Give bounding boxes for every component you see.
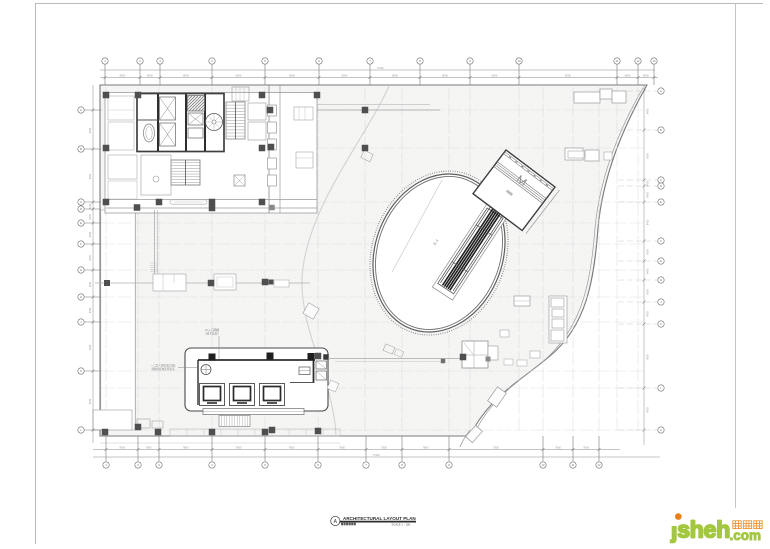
svg-text:8400: 8400 — [89, 214, 92, 220]
svg-text:8000: 8000 — [565, 73, 571, 77]
svg-text:7800: 7800 — [146, 445, 152, 449]
svg-text:7800: 7800 — [423, 445, 429, 449]
svg-text:B: B — [660, 128, 662, 132]
svg-text:(低于此层): (低于此层) — [205, 332, 218, 336]
svg-text:8000: 8000 — [625, 73, 631, 77]
svg-text:13: 13 — [652, 59, 656, 63]
svg-text:F: F — [660, 239, 662, 243]
svg-text:8400: 8400 — [89, 255, 92, 261]
svg-text:8000: 8000 — [492, 73, 498, 77]
svg-text:7800: 7800 — [493, 445, 499, 449]
svg-text:A: A — [660, 428, 662, 432]
svg-text:E: E — [660, 200, 662, 204]
svg-text:H: H — [80, 295, 82, 299]
svg-text:.com: .com — [730, 528, 762, 543]
svg-text:8400: 8400 — [647, 311, 650, 317]
svg-text:E: E — [80, 221, 82, 225]
svg-text:7800: 7800 — [583, 445, 589, 449]
svg-text:11: 11 — [615, 59, 618, 63]
svg-text:7800: 7800 — [381, 445, 387, 449]
svg-text:B: B — [80, 147, 82, 151]
svg-text:8400: 8400 — [647, 153, 650, 159]
svg-text:A: A — [660, 89, 662, 93]
svg-text:8400: 8400 — [89, 173, 92, 179]
svg-text:7800: 7800 — [236, 445, 242, 449]
svg-text:ARCHITECTURAL LAYOUT PLAN: ARCHITECTURAL LAYOUT PLAN — [343, 516, 416, 521]
svg-text:预留的配电及风机房: 预留的配电及风机房 — [151, 367, 175, 371]
svg-text:8400: 8400 — [647, 249, 650, 255]
svg-text:77400: 77400 — [372, 453, 380, 457]
svg-text:C: C — [660, 178, 662, 182]
svg-text:8000: 8000 — [342, 73, 348, 77]
svg-text:7800: 7800 — [183, 445, 189, 449]
svg-text:7800: 7800 — [289, 445, 295, 449]
svg-text:7800: 7800 — [555, 445, 561, 449]
svg-text:8400: 8400 — [647, 407, 650, 413]
svg-text:7800: 7800 — [119, 445, 125, 449]
svg-text:jsheh: jsheh — [670, 517, 730, 543]
svg-text:8400: 8400 — [647, 181, 650, 187]
svg-text:8400: 8400 — [89, 344, 92, 350]
svg-text:K: K — [80, 369, 82, 373]
svg-text:8400: 8400 — [647, 354, 650, 360]
svg-text:8000: 8000 — [120, 73, 126, 77]
svg-text:8000: 8000 — [643, 73, 649, 77]
svg-text:8400: 8400 — [647, 219, 650, 225]
svg-text:12: 12 — [597, 463, 601, 467]
svg-text:10: 10 — [541, 463, 545, 467]
svg-text:一二层人防区域(六级): 一二层人防区域(六级) — [150, 364, 175, 368]
svg-text:F: F — [80, 242, 82, 246]
svg-text:8400: 8400 — [89, 203, 92, 209]
svg-text:A: A — [80, 108, 82, 112]
svg-text:8400: 8400 — [647, 268, 650, 274]
svg-text:H: H — [660, 278, 662, 282]
svg-text:7800: 7800 — [339, 445, 345, 449]
svg-text:8400: 8400 — [647, 289, 650, 295]
svg-text:12: 12 — [636, 59, 640, 63]
svg-text:8000: 8000 — [289, 73, 295, 77]
svg-text:11: 11 — [571, 463, 574, 467]
svg-text:8000: 8000 — [442, 73, 448, 77]
svg-text:C: C — [80, 200, 82, 204]
svg-text:8400: 8400 — [647, 108, 650, 114]
svg-text:8400: 8400 — [89, 231, 92, 237]
svg-text:8400: 8400 — [89, 307, 92, 313]
svg-text:D: D — [660, 184, 662, 188]
svg-text:K: K — [660, 322, 662, 326]
svg-text:8400: 8400 — [89, 127, 92, 133]
svg-text:8000: 8000 — [392, 73, 398, 77]
svg-text:8000: 8000 — [236, 73, 242, 77]
svg-text:8400: 8400 — [89, 281, 92, 287]
svg-text:8000: 8000 — [147, 73, 153, 77]
svg-text:SCALE 1 : 100: SCALE 1 : 100 — [392, 522, 411, 526]
svg-text:D: D — [80, 207, 82, 211]
svg-text:10: 10 — [517, 59, 521, 63]
svg-text:77400: 77400 — [376, 66, 384, 70]
svg-text:8000: 8000 — [183, 73, 189, 77]
svg-text:8400: 8400 — [647, 192, 650, 198]
svg-text:8400: 8400 — [89, 398, 92, 404]
